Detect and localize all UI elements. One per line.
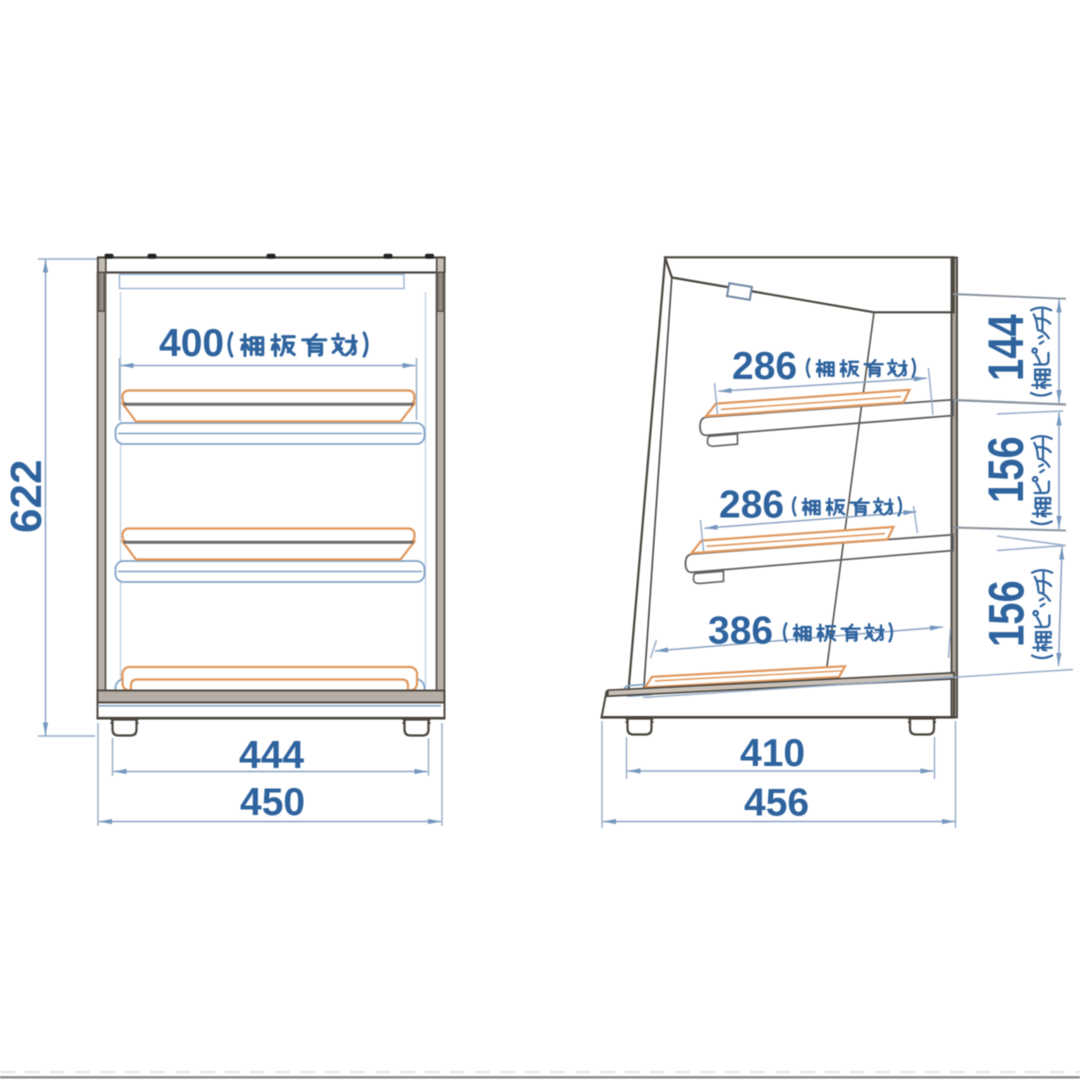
svg-text:144: 144 <box>978 314 1034 381</box>
svg-text:286: 286 <box>719 484 784 527</box>
svg-text:156: 156 <box>978 580 1034 647</box>
svg-text:156: 156 <box>978 436 1034 503</box>
svg-text:400: 400 <box>159 322 224 365</box>
svg-text:450: 450 <box>240 781 305 824</box>
svg-text:386: 386 <box>708 610 773 653</box>
svg-text:444: 444 <box>239 734 304 777</box>
svg-text:456: 456 <box>744 782 809 825</box>
svg-text:286: 286 <box>732 345 797 388</box>
svg-text:410: 410 <box>740 732 805 775</box>
svg-text:622: 622 <box>2 460 51 533</box>
